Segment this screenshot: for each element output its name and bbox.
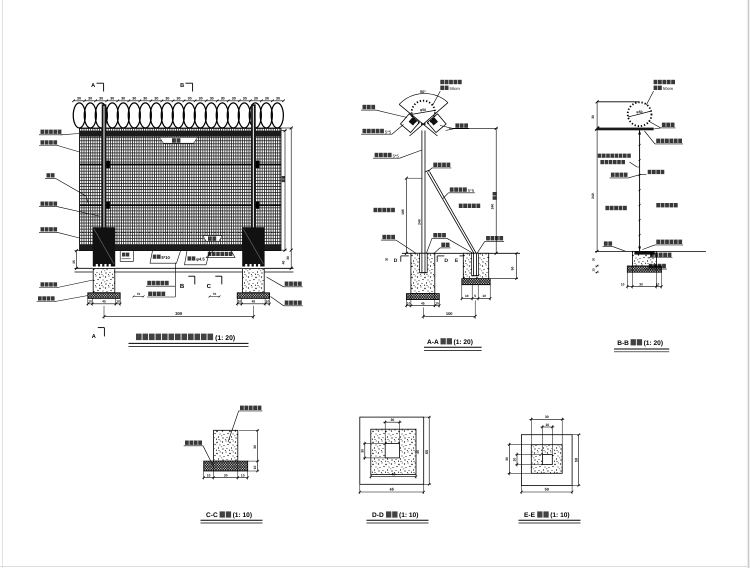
svg-text:A-A: A-A [427,339,439,346]
svg-text:30: 30 [243,97,247,101]
svg-text:30: 30 [505,457,509,461]
svg-text:B: B [180,83,184,89]
svg-text:30: 30 [199,97,203,101]
svg-text:φ50: φ50 [636,110,642,114]
svg-text:10: 10 [513,458,517,462]
svg-text:30: 30 [210,97,214,101]
svg-text:30: 30 [591,115,595,119]
svg-text:30: 30 [276,97,280,101]
svg-text:(1: 10): (1: 10) [233,512,252,519]
svg-text:30: 30 [110,97,114,101]
svg-text:30: 30 [188,97,192,101]
svg-text:φ4.5: φ4.5 [196,257,205,262]
svg-text:10: 10 [238,300,242,304]
svg-text:30: 30 [391,418,395,422]
svg-text:10: 10 [621,282,625,286]
svg-text:10: 10 [482,294,486,298]
svg-text:30: 30 [99,97,103,101]
svg-text:50: 50 [511,267,515,271]
svg-text:30: 30 [254,97,258,101]
svg-text:70: 70 [137,292,141,296]
svg-text:45: 45 [416,450,420,454]
svg-text:30: 30 [639,282,643,286]
svg-text:30: 30 [121,97,125,101]
svg-text:10: 10 [266,300,270,304]
svg-text:30: 30 [591,258,595,262]
svg-text:185: 185 [401,209,405,215]
svg-text:10: 10 [116,300,120,304]
svg-text:(1: 10): (1: 10) [550,512,569,519]
svg-text:45: 45 [252,300,256,304]
svg-text:30: 30 [253,445,257,449]
svg-text:10: 10 [88,300,92,304]
svg-text:5*5: 5*5 [385,129,392,134]
svg-text:10: 10 [241,473,245,477]
svg-text:30: 30 [360,449,364,453]
svg-text:50: 50 [574,458,578,462]
svg-text:10: 10 [435,301,439,305]
svg-text:(1: 20): (1: 20) [454,339,473,346]
svg-text:45: 45 [102,300,106,304]
svg-text:65: 65 [425,450,429,454]
svg-text:50: 50 [545,488,549,492]
svg-text:10: 10 [407,301,411,305]
svg-text:B: B [180,283,185,290]
svg-text:50cm: 50cm [663,86,674,91]
svg-text:30: 30 [88,97,92,101]
svg-text:5*10: 5*10 [161,255,170,260]
svg-text:30: 30 [132,97,136,101]
svg-text:D-D: D-D [372,512,384,519]
svg-text:240: 240 [418,219,422,225]
svg-text:D: D [394,258,398,264]
svg-text:φ50: φ50 [420,108,426,112]
svg-text:30: 30 [165,97,169,101]
svg-text:45: 45 [421,301,425,305]
svg-text:30: 30 [286,256,290,260]
svg-text:(1: 10): (1: 10) [399,512,418,519]
svg-text:30: 30 [77,97,81,101]
svg-text:65: 65 [390,488,394,492]
svg-text:A: A [91,83,95,89]
svg-text:10: 10 [253,466,257,470]
svg-text:70: 70 [213,292,217,296]
svg-text:5*5: 5*5 [468,188,475,193]
svg-text:D: D [444,258,448,264]
svg-text:10: 10 [545,423,549,427]
svg-text:(1: 20): (1: 20) [215,335,235,342]
svg-text:C-C: C-C [206,512,218,519]
svg-text:30: 30 [545,415,549,419]
svg-text:10: 10 [207,473,211,477]
svg-text:35: 35 [72,260,76,264]
svg-text:50cm: 50cm [450,86,461,91]
svg-text:30: 30 [232,97,236,101]
svg-text:100: 100 [446,311,453,316]
svg-text:A: A [92,334,96,340]
svg-text:10: 10 [465,294,469,298]
svg-text:40: 40 [282,261,286,265]
svg-text:240: 240 [491,204,495,210]
svg-text:15: 15 [591,268,595,272]
svg-text:10: 10 [656,282,660,286]
svg-text:30: 30 [143,97,147,101]
svg-text:C: C [207,283,212,290]
svg-text:30: 30 [177,97,181,101]
svg-text:50°: 50° [420,90,426,94]
svg-text:5*5: 5*5 [393,153,400,158]
svg-text:30: 30 [221,97,225,101]
svg-text:30: 30 [224,473,228,477]
svg-text:5: 5 [474,294,476,298]
svg-text:30: 30 [154,97,158,101]
svg-text:30: 30 [265,97,269,101]
svg-text:300: 300 [175,311,183,316]
svg-text:B-B: B-B [617,340,629,347]
svg-text:(1: 20): (1: 20) [644,340,663,347]
svg-text:45: 45 [391,472,395,476]
svg-text:240: 240 [591,193,595,199]
svg-text:30: 30 [385,258,389,262]
svg-text:E-E: E-E [524,512,536,519]
